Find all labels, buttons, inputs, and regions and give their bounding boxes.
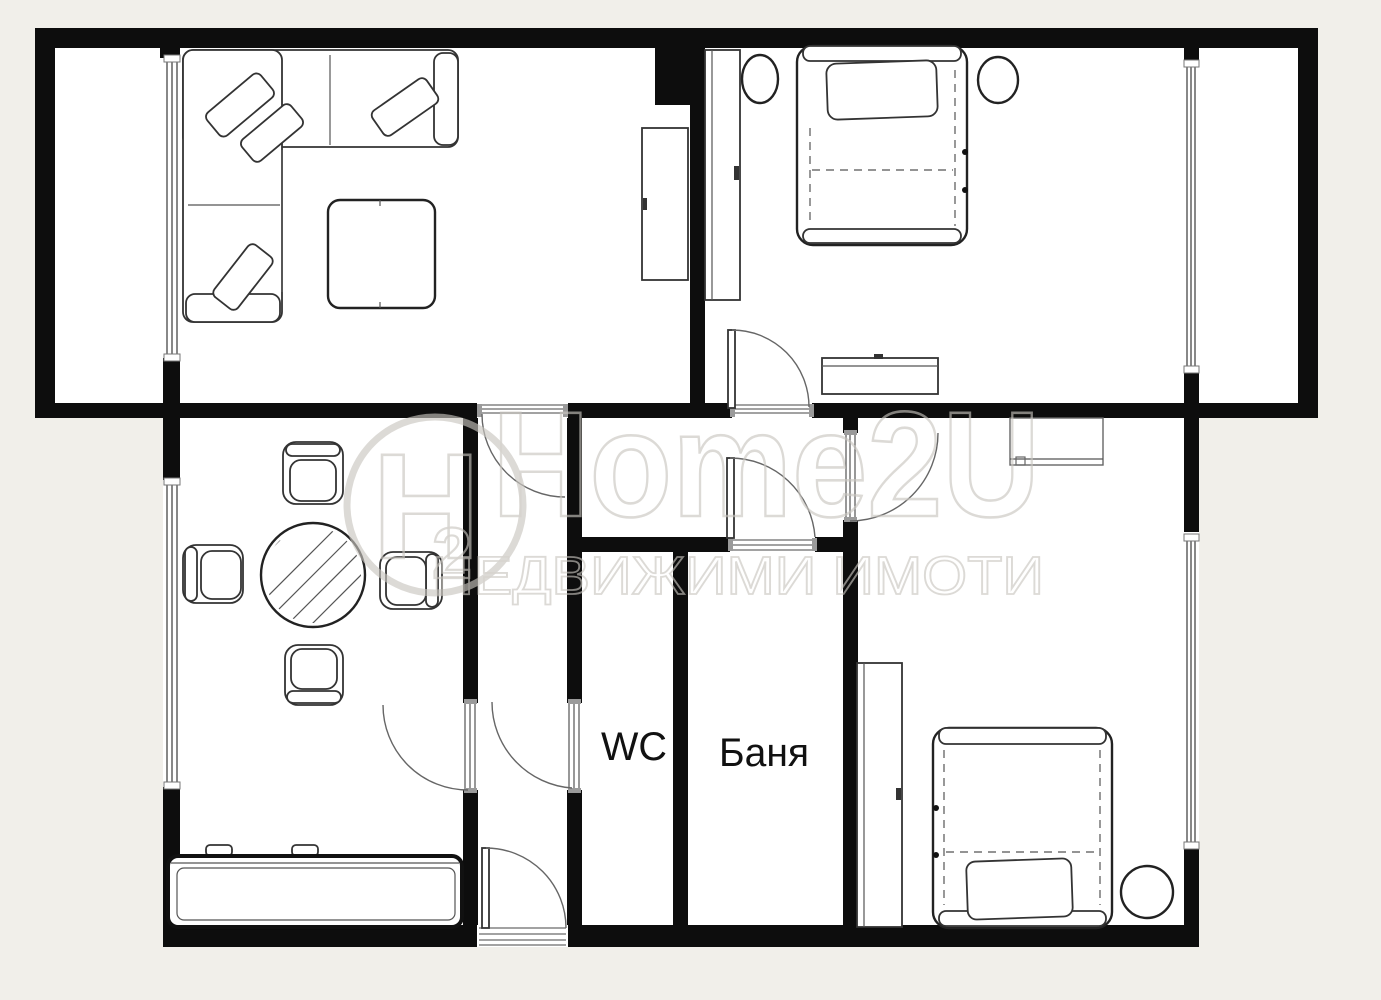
kitchen-window [164,478,180,789]
coffee-table [328,200,435,308]
wall-mid-left [35,403,477,418]
bedroom2-wardrobe [857,663,902,927]
tv-stand [642,128,688,280]
tv-stand-handle [643,198,647,210]
bed-detail [962,149,968,155]
bedroom2-window [1184,534,1199,849]
bed-detail [933,805,939,811]
bedroom2-nightstand [1121,866,1173,918]
dresser-handle [874,354,883,359]
floor-plan: WC Баня H 2 Home2U НЕДВИЖИМИ ИМОТИ [0,0,1381,1000]
single-bed [933,728,1112,928]
wardrobe-handle [734,166,739,180]
shaft-column [655,48,705,105]
watermark-tagline: НЕДВИЖИМИ ИМОТИ [432,546,1044,606]
post-livingroom-window-bottom [163,358,180,403]
post-kitchen-window-top [163,418,180,480]
livingroom-window [164,55,180,361]
wall-wc-bath [673,552,688,925]
dining-chair-bottom [285,645,343,705]
dining-chair-left [183,545,243,603]
bed-footboard [803,229,961,243]
wall-right-outer [1298,28,1318,418]
dining-chair-top [283,442,343,504]
entrance-door-leaf [482,848,489,928]
wall-top [35,28,1318,48]
watermark-brand: Home2U [492,380,1040,548]
bed-pillow [826,60,938,120]
room-label-bath: Баня [719,731,809,775]
post-bedroom1-window-bottom [1184,372,1199,418]
wall-left-outer [35,28,55,418]
bed-headboard [939,728,1106,744]
wall-bottom-right [568,925,1199,947]
kitchen-counter [168,845,462,927]
bed-detail [933,852,939,858]
bedroom1-window [1184,60,1199,373]
post-bedroom2-window-bottom [1184,847,1199,925]
bed-headboard [803,46,961,61]
wall-kitchen-hall-lower [463,790,478,925]
bed-detail [962,187,968,193]
bed-pillow [966,858,1073,920]
double-bed [797,46,968,245]
nightstand-right [978,57,1018,103]
room-label-wc: WC [601,725,667,769]
wall-hall-wc-lower [567,790,582,925]
post-bedroom2-window-top [1184,418,1199,532]
nightstand-left [742,55,778,103]
post-livingroom-window-top [160,28,180,58]
bedroom1-wardrobe [705,50,740,300]
wardrobe-handle [896,788,901,800]
